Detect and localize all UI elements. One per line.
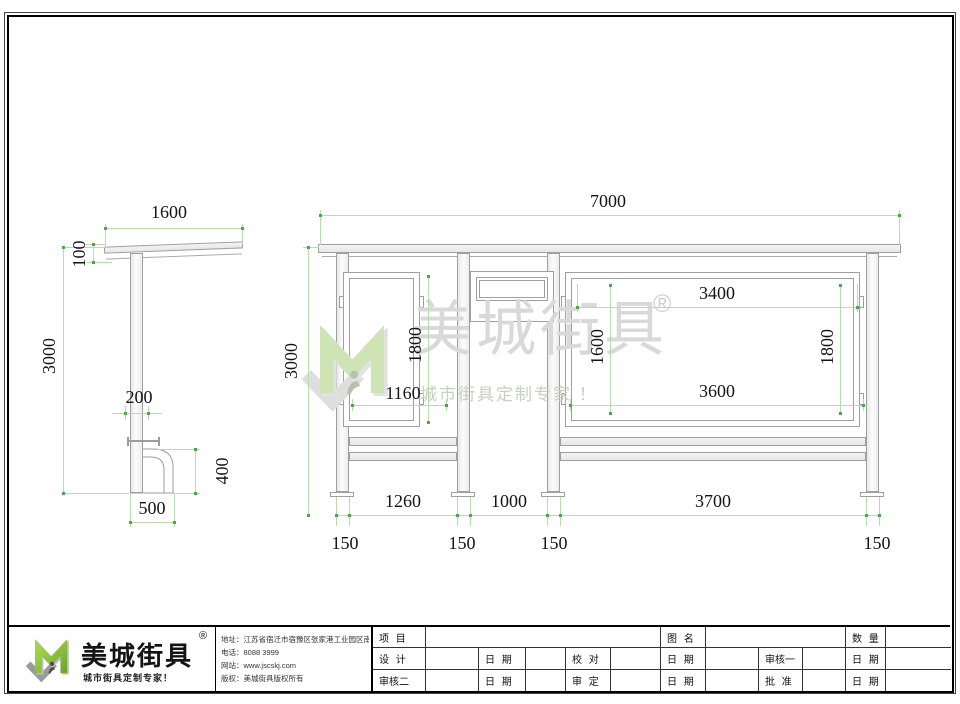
dimension-endpoint: [62, 246, 65, 249]
dimension-endpoint: [307, 246, 310, 249]
dimension-line: [570, 405, 863, 406]
label-ratify: 批 准: [759, 670, 803, 691]
dimension-endpoint: [569, 404, 572, 407]
company-logo-icon: [23, 633, 79, 687]
lightbox-clip: [339, 296, 344, 308]
front-column-4: [866, 253, 879, 492]
label-date: 日 期: [661, 648, 706, 669]
dimension-endpoint: [898, 214, 901, 217]
label-approve: 审 定: [566, 670, 611, 691]
dimension-endpoint: [241, 227, 244, 230]
rail-upper-left: [349, 437, 457, 446]
dim-side-roof-width: 1600: [141, 203, 197, 221]
dimension-line: [457, 497, 458, 526]
label-drawing-name: 图 名: [661, 627, 706, 648]
dimension-line: [308, 247, 309, 515]
dim-left-panel-height: 1800: [406, 323, 424, 367]
dim-bay-left: 1260: [365, 492, 441, 510]
value-project: [426, 627, 661, 648]
value-review1: [803, 648, 846, 669]
board-clip: [561, 393, 566, 405]
company-phone: 电话：8088 3999: [221, 646, 369, 659]
drawing-sheet: 美城街具 ® 城市街具定制专家 ！: [0, 0, 960, 704]
dimension-endpoint: [427, 421, 430, 424]
dimension-line: [336, 497, 337, 526]
front-roof: [318, 244, 901, 253]
dimension-line: [560, 497, 561, 526]
dim-footing-2: 150: [434, 534, 490, 552]
dimension-line: [63, 247, 64, 493]
dimension-endpoint: [92, 243, 95, 246]
dimension-endpoint: [335, 514, 338, 517]
dim-front-total-height: 3000: [282, 337, 300, 385]
front-column-2: [457, 253, 470, 492]
titleblock-table: 项 目 图 名 数 量 设 计 日 期 校 对 日 期 审核一 日 期 审核二 …: [372, 627, 950, 691]
value-approve: [611, 670, 661, 691]
dim-board-width-bottom: 3600: [679, 382, 755, 400]
dim-bay-middle: 1000: [471, 492, 547, 510]
dimension-endpoint: [147, 412, 150, 415]
dimension-endpoint: [576, 306, 579, 309]
front-roof-underline: [322, 256, 897, 257]
value-date: [706, 670, 759, 691]
dim-footing-4: 150: [849, 534, 905, 552]
label-date: 日 期: [479, 670, 526, 691]
value-date: [706, 648, 759, 669]
rail-upper-right: [560, 437, 866, 446]
dimension-endpoint: [878, 514, 881, 517]
label-project: 项 目: [373, 627, 426, 648]
lightbox-clip: [339, 393, 344, 405]
dimension-endpoint: [104, 227, 107, 230]
company-website: 网站：www.jscskj.com: [221, 659, 369, 672]
station-sign-panel: [479, 280, 545, 298]
titleblock-divider: [215, 627, 216, 691]
value-design: [426, 648, 479, 669]
dimension-line: [349, 497, 350, 526]
dimension-line: [866, 497, 867, 526]
dimension-endpoint: [92, 261, 95, 264]
dimension-endpoint: [194, 448, 197, 451]
dimension-line: [840, 285, 841, 413]
dimension-line: [130, 522, 174, 523]
company-address: 地址：江苏省宿迁市宿豫区张家港工业园区南丰路西侧1号: [221, 633, 369, 646]
dim-board-height-right: 1800: [818, 325, 836, 369]
dimension-endpoint: [445, 404, 448, 407]
label-design: 设 计: [373, 648, 426, 669]
dim-board-width-top: 3400: [679, 284, 755, 302]
dim-side-column-width: 200: [115, 388, 163, 406]
value-drawing-name: [706, 627, 846, 648]
dimension-endpoint: [559, 514, 562, 517]
dimension-endpoint: [609, 284, 612, 287]
label-review1: 审核一: [759, 648, 803, 669]
dim-footing-3: 150: [526, 534, 582, 552]
dimension-line: [577, 307, 857, 308]
dimension-endpoint: [348, 514, 351, 517]
label-check: 校 对: [566, 648, 611, 669]
value-date: [886, 670, 951, 691]
dimension-line: [105, 228, 243, 229]
label-date: 日 期: [479, 648, 526, 669]
dimension-endpoint: [839, 284, 842, 287]
dim-side-base-width: 500: [124, 499, 180, 517]
dimension-line: [86, 244, 106, 245]
dim-front-total-width: 7000: [570, 192, 646, 210]
value-check: [611, 648, 661, 669]
dimension-endpoint: [839, 412, 842, 415]
dimension-line: [63, 493, 129, 494]
value-date: [526, 670, 566, 691]
dimension-endpoint: [319, 214, 322, 217]
base-plate-1: [330, 492, 354, 497]
dimension-endpoint: [62, 492, 65, 495]
dimension-line: [195, 449, 196, 493]
value-date: [886, 648, 951, 669]
dimension-endpoint: [173, 521, 176, 524]
value-date: [526, 648, 566, 669]
dimension-endpoint: [307, 514, 310, 517]
dimension-endpoint: [862, 404, 865, 407]
value-ratify: [803, 670, 846, 691]
board-clip: [561, 296, 566, 308]
label-date: 日 期: [846, 648, 886, 669]
dim-left-panel-width: 1160: [375, 384, 431, 402]
label-date: 日 期: [846, 670, 886, 691]
dimension-line: [320, 215, 900, 216]
dimension-line: [610, 285, 611, 413]
base-plate-4: [860, 492, 884, 497]
title-block: 美城街具 ® 城市街具定制专家！ 地址：江苏省宿迁市宿豫区张家港工业园区南丰路西…: [9, 625, 950, 691]
dimension-line: [336, 515, 880, 516]
registered-trademark-icon: ®: [199, 630, 207, 642]
dimension-endpoint: [351, 404, 354, 407]
company-brand-text: 美城街具: [81, 636, 193, 673]
dim-board-height-left: 1600: [588, 325, 606, 369]
dimension-line: [303, 247, 319, 248]
value-quantity: [886, 627, 951, 648]
dim-bay-right: 3700: [675, 492, 751, 510]
value-review2: [426, 670, 479, 691]
dim-side-bench-height: 400: [213, 449, 231, 493]
dim-side-total-height: 3000: [40, 332, 58, 380]
dimension-endpoint: [456, 514, 459, 517]
dimension-line: [352, 405, 446, 406]
dimension-endpoint: [865, 514, 868, 517]
dimension-endpoint: [546, 514, 549, 517]
label-quantity: 数 量: [846, 627, 886, 648]
dimension-line: [112, 413, 162, 414]
dimension-line: [86, 262, 112, 263]
dimension-endpoint: [194, 492, 197, 495]
board-clip: [859, 296, 864, 308]
dimension-endpoint: [469, 514, 472, 517]
label-review2: 审核二: [373, 670, 426, 691]
rail-lower-left: [349, 452, 457, 461]
dim-side-roof-thickness: 100: [70, 236, 88, 272]
dim-footing-1: 150: [317, 534, 373, 552]
company-info: 地址：江苏省宿迁市宿豫区张家港工业园区南丰路西侧1号 电话：8088 3999 …: [221, 633, 369, 685]
dimension-endpoint: [129, 521, 132, 524]
dimension-line: [547, 497, 548, 526]
dimension-endpoint: [427, 275, 430, 278]
dimension-endpoint: [124, 412, 127, 415]
company-slogan: 城市街具定制专家！: [83, 671, 173, 684]
dimension-endpoint: [609, 412, 612, 415]
lightbox-clip: [419, 296, 424, 308]
company-copyright: 版权：美城街具版权所有: [221, 672, 369, 685]
dimension-line: [879, 497, 880, 526]
dimension-endpoint: [856, 306, 859, 309]
rail-lower-right: [560, 452, 866, 461]
label-date: 日 期: [661, 670, 706, 691]
